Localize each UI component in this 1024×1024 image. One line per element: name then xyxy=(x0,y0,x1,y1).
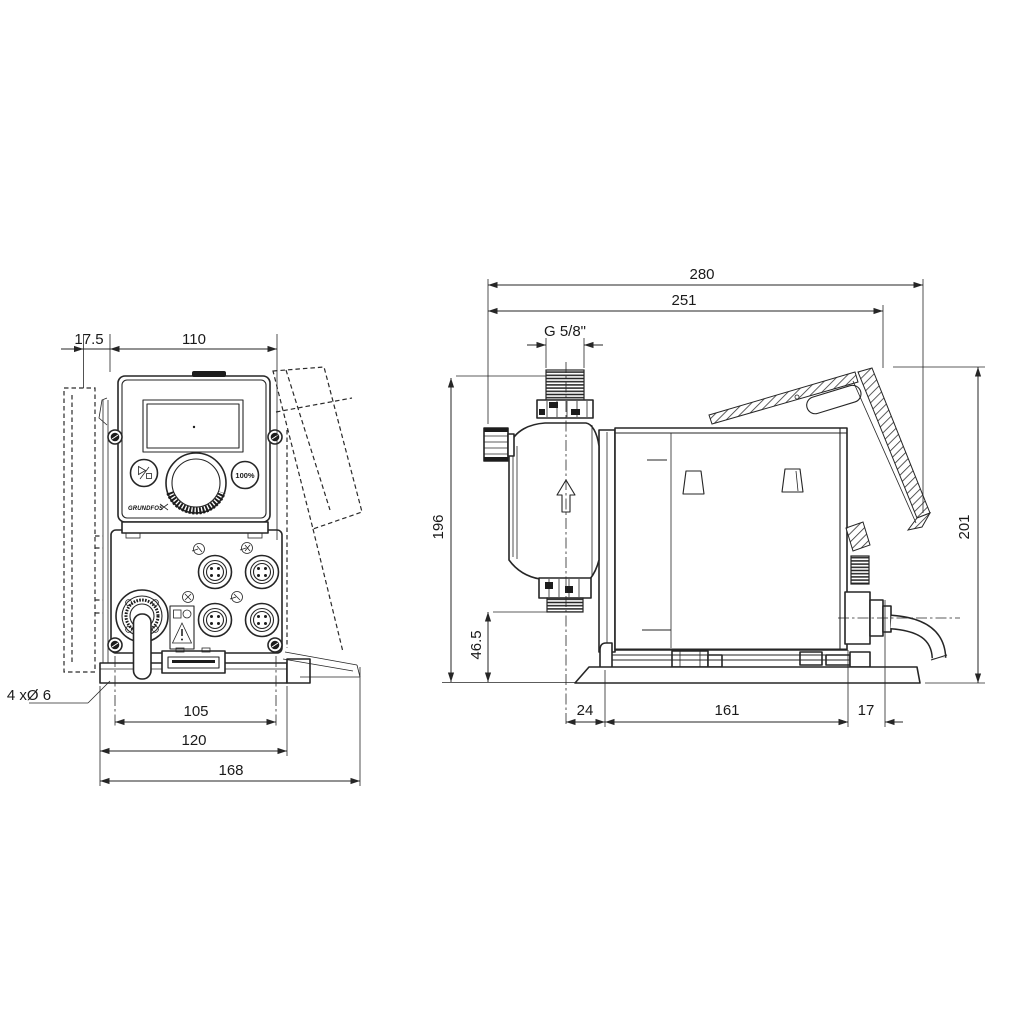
cable-gland-side xyxy=(838,556,960,660)
mains-cable-front xyxy=(134,614,152,679)
hundred-percent-button: 100% xyxy=(232,462,259,489)
vent-slot xyxy=(683,471,704,494)
mounting-bracket-hidden xyxy=(273,367,362,652)
inlet-union-nut xyxy=(537,400,593,418)
m12-connector xyxy=(246,556,279,589)
dim-251: 251 xyxy=(671,292,696,309)
dim-holes-note: 4 xØ 6 xyxy=(7,687,51,704)
motor-housing xyxy=(599,428,847,652)
outlet-thread xyxy=(547,598,583,612)
hundred-percent-label: 100% xyxy=(235,471,255,480)
dim-280: 280 xyxy=(689,266,714,283)
rail-clamp xyxy=(162,648,225,673)
logo-text: GRUNDFOS xyxy=(128,506,163,512)
dimensional-drawing-canvas: 100% GRUNDFOS xyxy=(0,0,1024,1024)
inlet-thread xyxy=(546,370,584,400)
technical-drawing: 100% GRUNDFOS xyxy=(0,0,1024,1024)
priming-knob xyxy=(484,428,514,461)
dim-17-5: 17.5 xyxy=(74,331,103,348)
screw-icon xyxy=(108,430,122,444)
dim-196: 196 xyxy=(430,514,447,539)
grundfos-logo: GRUNDFOS xyxy=(128,504,168,512)
side-view: 280 251 G 5/8" 196 46.5 201 24 xyxy=(430,266,985,727)
screw-icon xyxy=(268,638,282,652)
start-stop-button xyxy=(131,460,158,487)
dim-thread: G 5/8" xyxy=(544,323,586,340)
dim-105: 105 xyxy=(183,703,208,720)
warning-label xyxy=(170,606,194,649)
wall-plate-hidden xyxy=(64,388,108,672)
m12-connector xyxy=(199,556,232,589)
vent-slot xyxy=(782,469,803,492)
dim-110: 110 xyxy=(182,331,206,348)
m12-connector xyxy=(199,604,232,637)
outlet-union-nut xyxy=(539,578,591,598)
screw-icon xyxy=(268,430,282,444)
dim-24: 24 xyxy=(577,702,594,719)
top-tab xyxy=(192,371,226,377)
head-body xyxy=(509,423,599,579)
dim-17: 17 xyxy=(858,702,875,719)
front-view: 100% GRUNDFOS xyxy=(7,331,362,786)
m12-connector xyxy=(246,604,279,637)
dim-168: 168 xyxy=(218,762,243,779)
screw-icon xyxy=(108,638,122,652)
dosing-head xyxy=(484,370,599,612)
dim-201: 201 xyxy=(956,514,973,539)
dim-120: 120 xyxy=(181,732,206,749)
dim-46-5: 46.5 xyxy=(468,630,485,659)
click-wheel xyxy=(166,453,226,513)
dim-161: 161 xyxy=(714,702,739,719)
